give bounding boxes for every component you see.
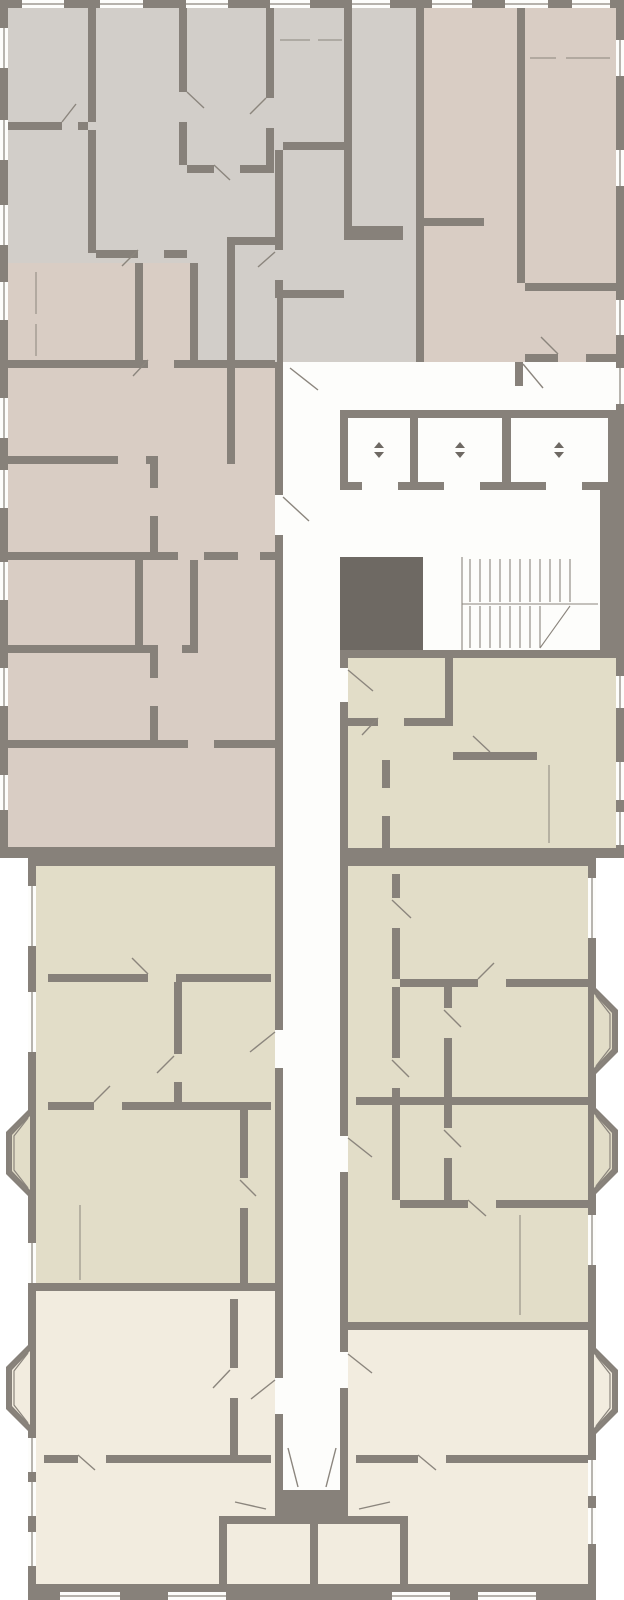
- corridor-left-wall: [275, 362, 283, 855]
- unit-lower-right-floor: [348, 866, 588, 1322]
- entry-opening: [340, 1136, 348, 1172]
- door-opening: [478, 979, 506, 987]
- entry-opening: [275, 1378, 283, 1414]
- wall: [356, 1455, 588, 1463]
- door-opening: [158, 645, 182, 653]
- door-opening: [382, 788, 390, 816]
- wall: [8, 552, 275, 560]
- wall: [453, 752, 537, 760]
- wall: [344, 8, 352, 226]
- door-opening: [378, 718, 404, 726]
- wall: [344, 226, 403, 240]
- elevator-bank-wall: [502, 418, 511, 482]
- wall: [525, 283, 616, 291]
- wall: [274, 142, 352, 150]
- wall: [227, 237, 277, 245]
- wall: [392, 987, 400, 1200]
- wall: [190, 560, 198, 645]
- wall: [219, 1516, 408, 1524]
- door-opening: [179, 92, 187, 122]
- door-opening: [150, 488, 158, 516]
- wall: [8, 740, 275, 748]
- wall: [174, 982, 182, 1102]
- door-opening: [392, 898, 400, 928]
- door-opening: [148, 360, 174, 368]
- door-opening: [148, 974, 176, 982]
- entry-opening: [275, 1030, 283, 1068]
- wall: [266, 8, 274, 165]
- wall: [517, 8, 525, 283]
- floor-plan: [0, 0, 624, 1600]
- door-opening: [138, 250, 164, 258]
- door-opening: [444, 1008, 452, 1038]
- wall: [515, 362, 523, 386]
- corridor-main: [283, 418, 340, 1490]
- door-opening: [275, 250, 283, 280]
- wall: [227, 237, 235, 362]
- wall: [88, 130, 96, 253]
- door-opening: [150, 678, 158, 706]
- bottom-center-room-right: [318, 1524, 400, 1584]
- service-shaft: [340, 557, 423, 650]
- door-opening: [392, 1058, 400, 1088]
- wall: [452, 1097, 588, 1105]
- wall: [179, 8, 187, 165]
- elevator-door-opening: [444, 482, 480, 490]
- elevator-door-opening: [362, 482, 398, 490]
- wall: [424, 218, 484, 226]
- wall: [135, 263, 143, 360]
- door-opening: [94, 1102, 122, 1110]
- door-opening: [558, 354, 586, 362]
- bottom-center-room-left: [227, 1524, 310, 1584]
- unit-lower-left-floor: [36, 866, 275, 1283]
- door-opening: [266, 98, 274, 128]
- door-opening: [174, 1054, 182, 1082]
- corridor-top: [283, 362, 616, 418]
- elevator-2-cab: [418, 418, 502, 482]
- entry-opening: [275, 495, 283, 535]
- floor-plan-svg: [0, 0, 624, 1600]
- door-opening: [188, 740, 214, 748]
- elevator-bank-wall: [410, 418, 418, 482]
- wall: [48, 1102, 271, 1110]
- wall: [400, 1516, 408, 1592]
- wall: [283, 290, 344, 298]
- elevator-3-cab: [511, 418, 608, 482]
- door-opening: [274, 142, 283, 150]
- door-opening: [230, 1368, 238, 1398]
- elevator-1-cab: [348, 418, 410, 482]
- wall: [135, 560, 143, 645]
- wall: [445, 658, 453, 718]
- wall: [88, 8, 96, 122]
- door-opening: [238, 552, 260, 560]
- corridor-below-elevators: [340, 490, 600, 557]
- door-opening: [444, 1128, 452, 1158]
- door-opening: [178, 552, 204, 560]
- elevator-bank-wall: [340, 418, 348, 482]
- door-opening: [118, 456, 146, 464]
- wall: [227, 368, 235, 464]
- wall: [219, 1516, 227, 1592]
- door-opening: [240, 1178, 248, 1208]
- door-opening: [62, 122, 78, 130]
- entry-opening: [340, 1352, 348, 1388]
- wall: [190, 263, 198, 362]
- elevator-door-opening: [546, 482, 582, 490]
- entry-opening: [340, 668, 348, 702]
- elevator-bank-wall: [608, 410, 616, 482]
- elevator-bank-wall: [340, 410, 616, 418]
